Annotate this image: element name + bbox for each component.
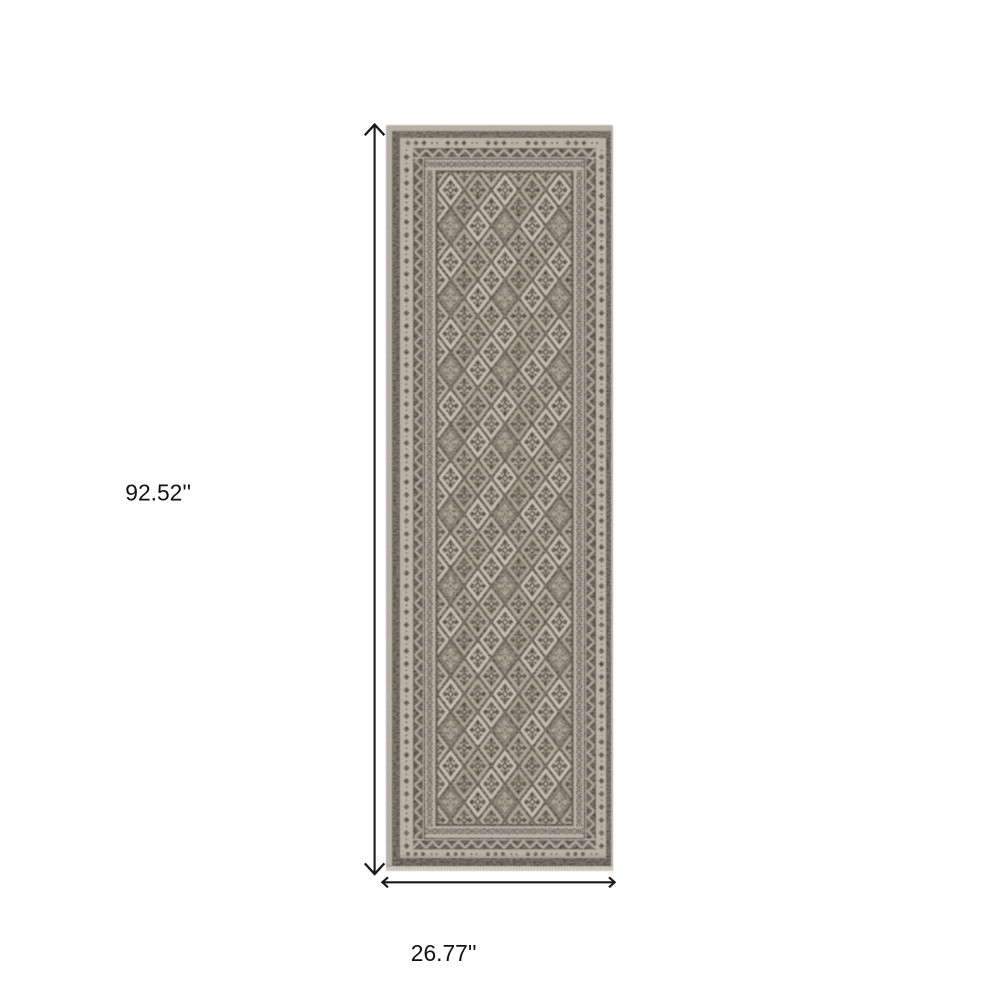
svg-text:92.52'': 92.52'' — [125, 480, 191, 506]
svg-text:26.77'': 26.77'' — [411, 940, 477, 966]
